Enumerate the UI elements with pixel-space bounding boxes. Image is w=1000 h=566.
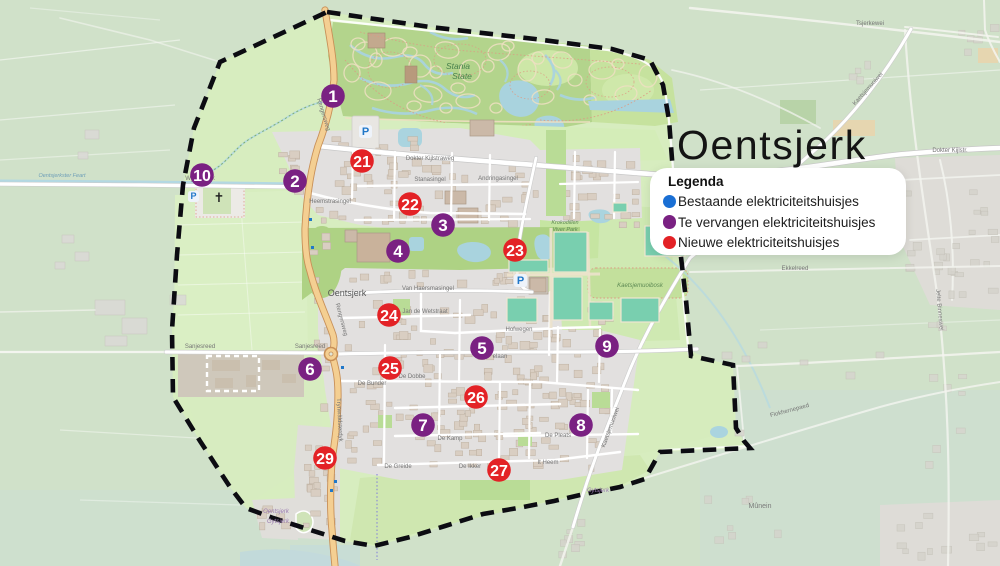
- svg-text:Van Haersmasingel: Van Haersmasingel: [402, 286, 454, 292]
- svg-text:De Kamp: De Kamp: [437, 436, 463, 442]
- svg-text:Stania: Stania: [446, 61, 470, 71]
- svg-text:Oentsjerkster Feart: Oentsjerkster Feart: [38, 173, 86, 179]
- svg-text:Gytsjerk: Gytsjerk: [587, 488, 610, 494]
- svg-text:1: 1: [328, 87, 337, 106]
- svg-text:Krokodillen: Krokodillen: [551, 220, 578, 226]
- svg-text:Dokter Kijlstr.: Dokter Kijlstr.: [932, 148, 968, 154]
- svg-text:Dokter Kijlstraweg: Dokter Kijlstraweg: [406, 156, 454, 162]
- svg-text:Oentsjerk: Oentsjerk: [263, 509, 290, 515]
- svg-text:23: 23: [506, 243, 524, 260]
- svg-text:It Heem: It Heem: [537, 460, 558, 466]
- svg-text:Sanjesreed: Sanjesreed: [185, 344, 215, 350]
- svg-text:Andringasingel: Andringasingel: [478, 176, 518, 182]
- svg-text:4: 4: [393, 242, 403, 261]
- svg-text:29: 29: [316, 451, 334, 468]
- svg-text:5: 5: [477, 339, 486, 358]
- svg-text:22: 22: [401, 197, 419, 214]
- svg-text:De Bunder: De Bunder: [358, 381, 387, 387]
- svg-text:3: 3: [438, 216, 447, 235]
- svg-text:Mûnein: Mûnein: [749, 503, 772, 510]
- svg-text:2: 2: [290, 172, 299, 191]
- svg-text:State: State: [452, 71, 472, 81]
- svg-text:Kaetsjemuoibosk: Kaetsjemuoibosk: [617, 283, 664, 289]
- svg-text:elaan: elaan: [493, 354, 508, 360]
- svg-text:P: P: [517, 275, 524, 287]
- svg-text:P: P: [362, 126, 369, 138]
- svg-text:27: 27: [490, 463, 508, 480]
- svg-text:Jan de Wetstraat: Jan de Wetstraat: [402, 309, 448, 315]
- svg-text:10: 10: [193, 168, 211, 185]
- svg-text:Gytsjerk: Gytsjerk: [267, 519, 290, 525]
- svg-text:Ekkelreed: Ekkelreed: [782, 266, 809, 272]
- svg-text:9: 9: [602, 337, 611, 356]
- svg-text:✝: ✝: [214, 190, 225, 205]
- svg-text:Heemstrasingel: Heemstrasingel: [309, 199, 351, 205]
- svg-text:21: 21: [353, 154, 371, 171]
- svg-text:7: 7: [418, 416, 427, 435]
- svg-text:P: P: [190, 191, 196, 201]
- svg-text:8: 8: [576, 416, 585, 435]
- svg-text:25: 25: [381, 361, 399, 378]
- svg-text:Sanjesreed: Sanjesreed: [295, 344, 325, 350]
- svg-text:24: 24: [380, 308, 398, 325]
- svg-text:De Dobbe: De Dobbe: [398, 374, 426, 380]
- svg-text:26: 26: [467, 390, 485, 407]
- svg-text:Tsjerkewei: Tsjerkewei: [856, 21, 884, 27]
- svg-text:Hofwegen: Hofwegen: [505, 327, 532, 333]
- svg-text:6: 6: [305, 360, 314, 379]
- svg-text:De Ikker: De Ikker: [459, 464, 481, 470]
- svg-text:De Pleats: De Pleats: [545, 433, 571, 439]
- svg-text:Oentsjerk: Oentsjerk: [328, 288, 367, 298]
- svg-text:Stanasingel: Stanasingel: [414, 177, 445, 183]
- svg-text:De Greide: De Greide: [384, 464, 412, 470]
- svg-text:Viver Park: Viver Park: [552, 227, 578, 233]
